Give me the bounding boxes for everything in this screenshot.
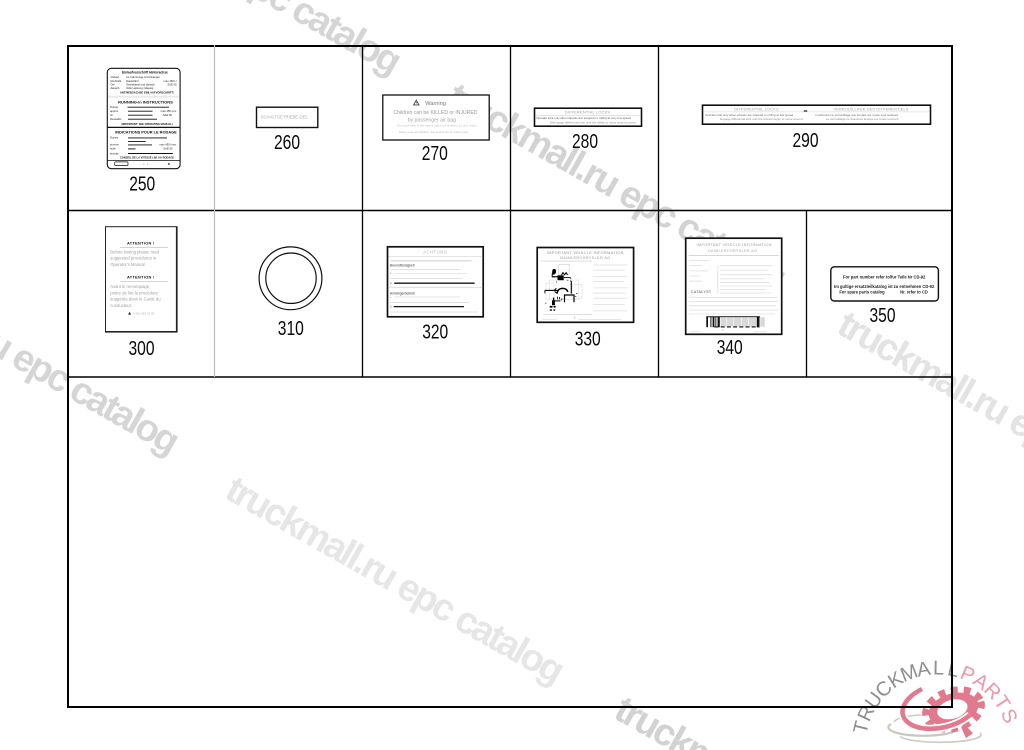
- svg-text:ensuite: ensuite: [110, 151, 119, 155]
- svg-text:340: 340: [717, 336, 743, 358]
- svg-text:ANTRIEBSACHSE EINLAUFVORSCHRIF: ANTRIEBSACHSE EINLAUFVORSCHRIFT!: [120, 90, 174, 94]
- svg-text:RUNNING-in INSTRUCTIONS: RUNNING-in INSTRUCTIONS: [118, 99, 173, 104]
- svg-text:1.: 1.: [390, 295, 393, 299]
- svg-text:suggérée dans le Guide du: suggérée dans le Guide du: [110, 297, 161, 302]
- svg-text:290: 290: [792, 129, 818, 151]
- svg-text:320: 320: [422, 320, 448, 342]
- svg-text:IMPORTANT VEHICLE INFORMATION: IMPORTANT VEHICLE INFORMATION: [697, 243, 772, 247]
- svg-text:260: 260: [274, 131, 300, 153]
- svg-text:Operate lock only when wheels: Operate lock only when wheels are stoppe…: [705, 113, 794, 117]
- svg-text:(IMPORTANT: SEE OPERATING MANU: (IMPORTANT: SEE OPERATING MANUAL): [121, 122, 172, 126]
- svg-text:suggested procedures in: suggested procedures in: [110, 256, 157, 261]
- svg-text:truckmall.ru epc catalog: truckmall.ru epc catalog: [831, 303, 1024, 528]
- svg-text:Anhängerbetrieb: Anhängerbetrieb: [390, 292, 415, 296]
- svg-text:Operator's Manual.: Operator's Manual.: [110, 262, 145, 267]
- svg-text:Volle Leistung zulassig: Volle Leistung zulassig: [126, 86, 154, 90]
- svg-text:SCHALTGETRIEBE-OEL: SCHALTGETRIEBE-OEL: [261, 114, 309, 119]
- svg-text:Children can be KILLED or INJU: Children can be KILLED or INJURED: [393, 110, 477, 116]
- svg-text:Warning: Warning: [425, 101, 446, 107]
- svg-text:Drehzahl: Drehzahl: [111, 79, 122, 83]
- svg-text:Getriebeoel und danach: Getriebeoel und danach: [126, 82, 155, 86]
- svg-text:2.: 2.: [390, 281, 393, 285]
- svg-text:Disengage differential lock un: Disengage differential lock until the ab…: [550, 120, 636, 124]
- svg-text:Durant: Durant: [110, 136, 118, 140]
- svg-text:Avant le remorquage,: Avant le remorquage,: [110, 284, 150, 289]
- svg-text:Engage differential lock until: Engage differential lock until the wheel…: [720, 117, 803, 121]
- svg-text:Dauerfahrt: Dauerfahrt: [126, 79, 139, 83]
- svg-text:Vorlauf: Vorlauf: [111, 75, 120, 79]
- svg-text:·•·•·: ·•·•·: [141, 162, 151, 166]
- svg-text:huile: huile: [110, 147, 116, 151]
- svg-text:&: &: [574, 315, 576, 319]
- svg-text:A 462 584 03 28: A 462 584 03 28: [133, 312, 154, 316]
- svg-text:ATTENTION !: ATTENTION !: [127, 274, 155, 279]
- svg-text:1.: 1.: [390, 271, 393, 275]
- svg-text:SAE 90: SAE 90: [163, 147, 173, 151]
- svg-text:ACHTUNG: ACHTUNG: [423, 250, 447, 255]
- svg-text:DAIMLERCHRYSLER AG: DAIMLERCHRYSLER AG: [560, 255, 610, 260]
- svg-text:environ: environ: [110, 143, 119, 147]
- svg-text:270: 270: [422, 142, 448, 164]
- svg-text:SAE 90: SAE 90: [163, 113, 173, 117]
- svg-text:350: 350: [869, 304, 895, 326]
- svg-text:oil: oil: [110, 113, 113, 117]
- svg-text:300: 300: [128, 337, 154, 359]
- svg-text:310: 310: [278, 317, 304, 339]
- svg-text:A: A: [915, 658, 933, 682]
- svg-text:Nr. refer to CD: Nr. refer to CD: [900, 289, 928, 294]
- svg-text:ATTENTION !: ATTENTION !: [127, 240, 155, 245]
- svg-text:VERROUILLAGE DES DIFFERENTIELS: VERROUILLAGE DES DIFFERENTIELS: [834, 108, 909, 112]
- svg-text:max 450 U: max 450 U: [164, 79, 177, 83]
- svg-text:max 450 t/min: max 450 t/min: [159, 143, 176, 147]
- svg-text:DIFFERENTIAL LOCKS: DIFFERENTIAL LOCKS: [734, 108, 779, 112]
- svg-text:approx: approx: [110, 109, 119, 113]
- svg-text:During: During: [110, 105, 118, 109]
- svg-text:DIFFERENTIAL LOCKS: DIFFERENTIAL LOCKS: [565, 110, 611, 115]
- svg-text:250: 250: [129, 173, 155, 195]
- svg-text:Before towing please read: Before towing please read: [110, 249, 159, 254]
- svg-text:Le verrouillage se desactive l: Le verrouillage se desactive lorsque les…: [826, 117, 899, 121]
- svg-text:280: 280: [572, 130, 598, 152]
- svg-text:The back seat is the safest pl: The back seat is the safest place for ch…: [396, 124, 477, 128]
- svg-text:2.: 2.: [390, 304, 393, 308]
- svg-text:ca. Fahrzeuge mit Anhanger: ca. Fahrzeuge mit Anhanger: [126, 75, 160, 79]
- svg-text:For spare parts catalog: For spare parts catalog: [839, 289, 885, 294]
- svg-text:Bremsflüssigkeit: Bremsflüssigkeit: [390, 264, 415, 268]
- svg-text:danach: danach: [111, 86, 120, 90]
- svg-text:Oel: Oel: [111, 82, 116, 86]
- svg-text:L: L: [933, 657, 945, 679]
- svg-text:330: 330: [575, 328, 601, 350]
- svg-text:conducteur.: conducteur.: [110, 303, 132, 308]
- svg-text:prière de lire la procédur: prière de lire la procédure: [110, 290, 158, 295]
- svg-text:Einlaufvorschrift Hinterachse: Einlaufvorschrift Hinterachse: [122, 71, 168, 75]
- svg-text:truckmall.ru epc catalog: truckmall.ru epc catalog: [219, 468, 572, 693]
- svg-text:INDICATIONS POUR LE RODAGE: INDICATIONS POUR LE RODAGE: [115, 129, 177, 134]
- svg-text:SAE 90: SAE 90: [167, 82, 177, 86]
- svg-text:max 450 rpm: max 450 rpm: [161, 109, 177, 113]
- svg-text:thereafter: thereafter: [110, 117, 122, 121]
- svg-text:DAIMLERCHRYSLER AG: DAIMLERCHRYSLER AG: [708, 249, 757, 253]
- svg-text:Make sure all children use sea: Make sure all children use seat belts or…: [399, 130, 469, 134]
- svg-text:CATALYST: CATALYST: [691, 290, 712, 294]
- svg-text:by passenger air bag: by passenger air bag: [408, 117, 457, 123]
- svg-text:N actionner le verrouillage qu: N actionner le verrouillage que lorsque …: [815, 113, 898, 117]
- svg-text:For part number refer to/fur T: For part number refer to/fur Teile Nr CD…: [843, 274, 926, 279]
- svg-text:CONSEIL DE LA VITESSE LIM. AU: CONSEIL DE LA VITESSE LIM. AU RODAGE: [120, 156, 174, 160]
